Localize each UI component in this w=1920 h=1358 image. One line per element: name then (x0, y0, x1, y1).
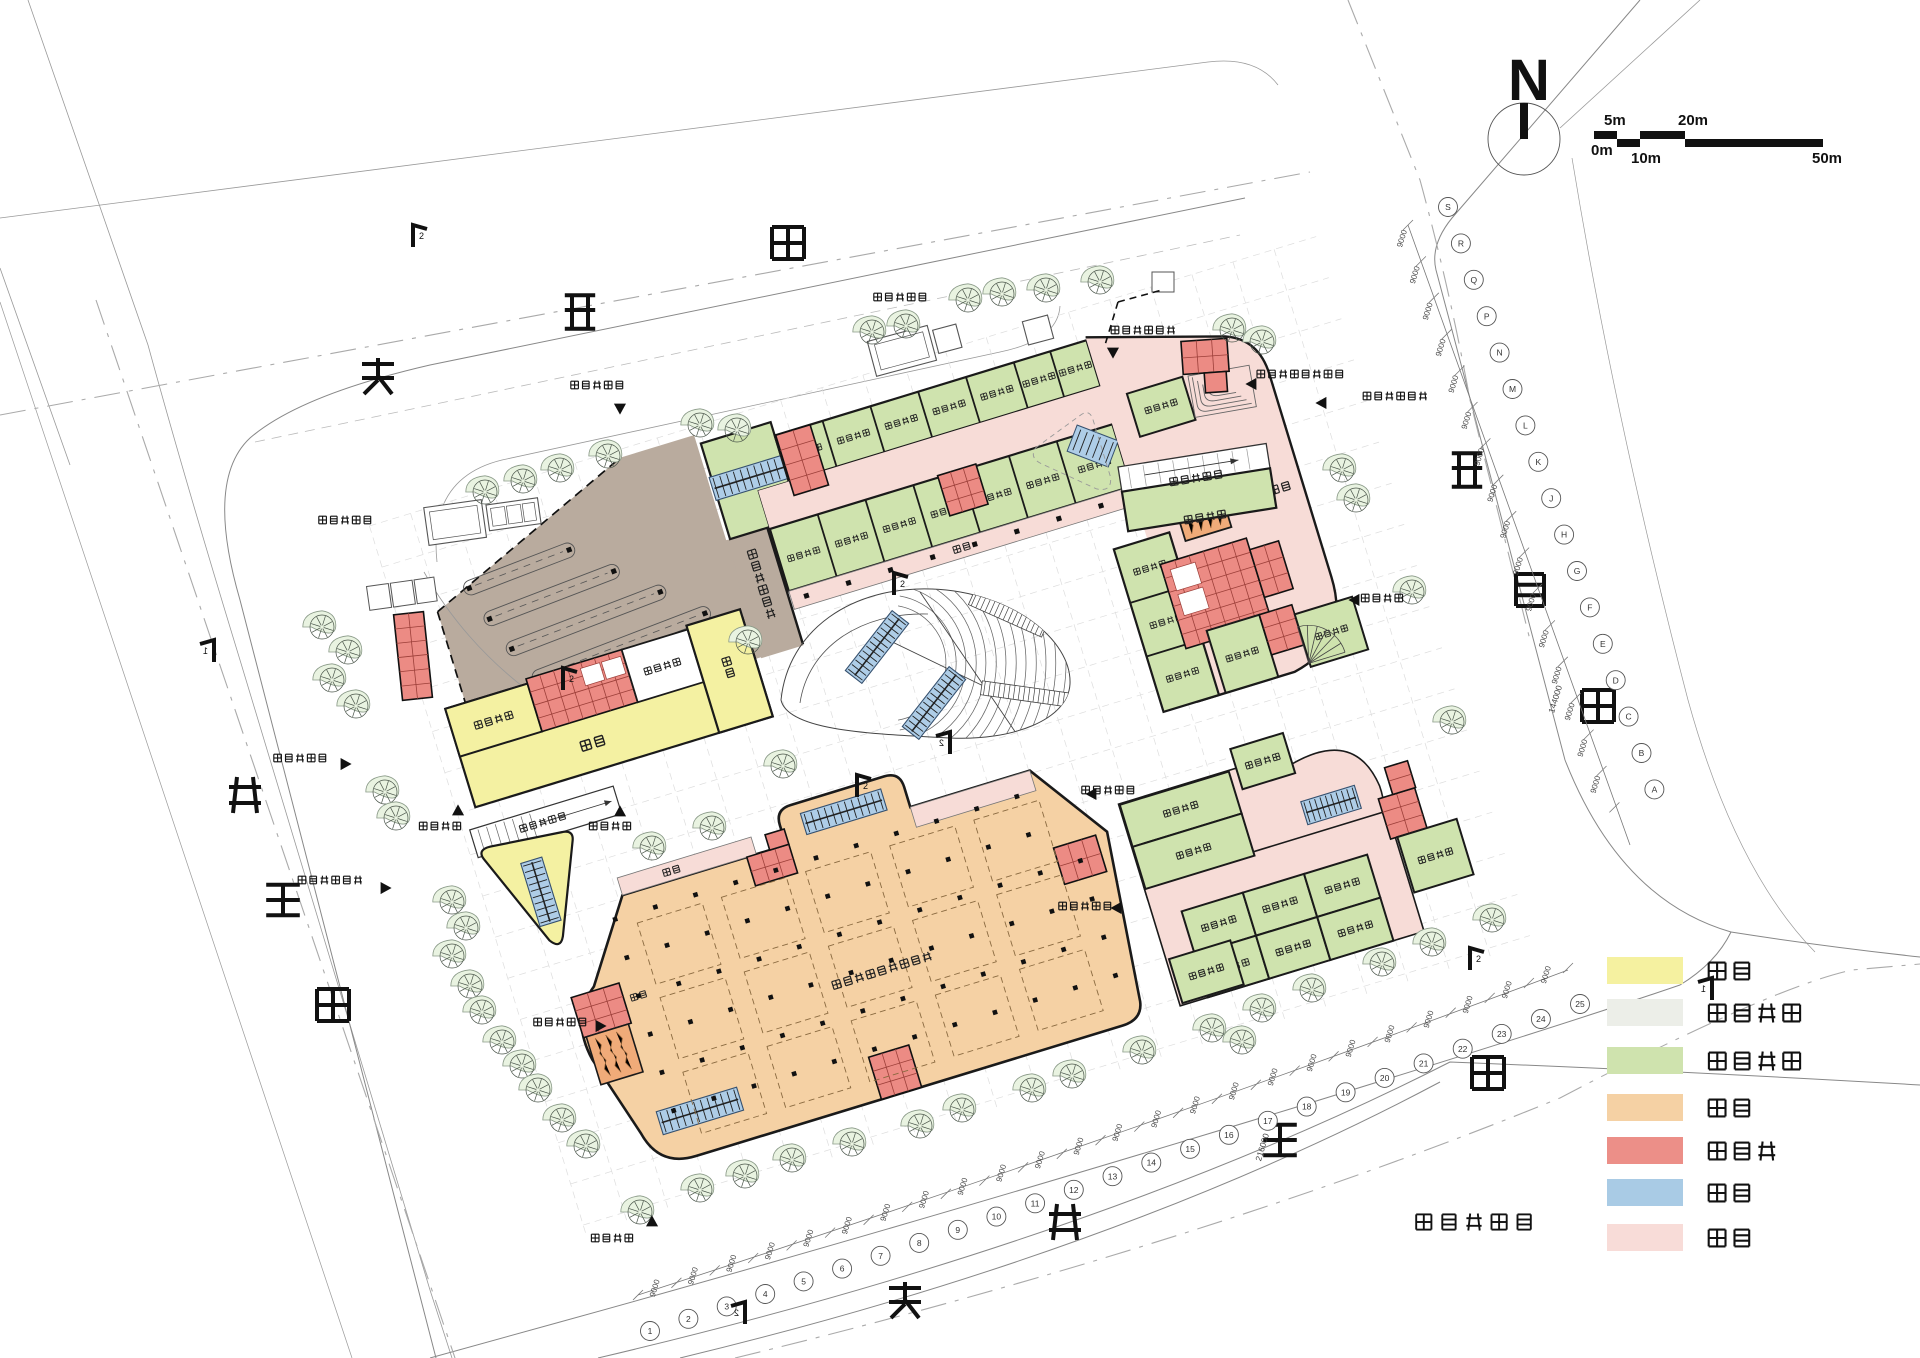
svg-text:4: 4 (763, 1289, 768, 1299)
svg-text:2: 2 (900, 579, 905, 589)
svg-text:25: 25 (1575, 999, 1585, 1009)
svg-text:D: D (1613, 675, 1619, 685)
svg-text:L: L (1523, 421, 1528, 431)
svg-text:16: 16 (1224, 1130, 1234, 1140)
svg-text:14: 14 (1147, 1158, 1157, 1168)
svg-text:9: 9 (955, 1225, 960, 1235)
svg-text:23: 23 (1497, 1029, 1507, 1039)
svg-text:1: 1 (203, 646, 208, 656)
svg-text:F: F (1587, 603, 1592, 613)
svg-text:1: 1 (1701, 984, 1706, 994)
svg-text:3: 3 (724, 1302, 729, 1312)
svg-text:18: 18 (1302, 1102, 1312, 1112)
svg-text:1: 1 (648, 1326, 653, 1336)
svg-text:2: 2 (939, 738, 944, 748)
svg-text:8: 8 (917, 1238, 922, 1248)
svg-text:E: E (1600, 639, 1606, 649)
svg-text:6: 6 (840, 1264, 845, 1274)
svg-text:M: M (1509, 384, 1516, 394)
svg-text:S: S (1445, 202, 1451, 212)
svg-text:5: 5 (801, 1276, 806, 1286)
svg-text:19: 19 (1341, 1087, 1351, 1097)
svg-text:2: 2 (569, 674, 574, 684)
svg-text:5m: 5m (1604, 112, 1626, 129)
svg-text:7: 7 (878, 1251, 883, 1261)
svg-text:2: 2 (863, 781, 868, 791)
svg-text:11: 11 (1031, 1198, 1040, 1208)
svg-text:A: A (1652, 785, 1658, 795)
svg-text:10m: 10m (1631, 150, 1661, 167)
svg-text:20m: 20m (1678, 112, 1708, 129)
svg-text:15: 15 (1185, 1144, 1195, 1154)
svg-text:17: 17 (1263, 1116, 1273, 1126)
svg-text:50m: 50m (1812, 150, 1842, 167)
svg-text:Q: Q (1470, 275, 1477, 285)
svg-text:2: 2 (686, 1314, 691, 1324)
svg-text:2: 2 (1476, 954, 1481, 964)
svg-text:J: J (1549, 493, 1553, 503)
svg-text:B: B (1639, 748, 1645, 758)
svg-text:21: 21 (1419, 1058, 1429, 1068)
svg-text:R: R (1458, 239, 1464, 249)
svg-text:24: 24 (1536, 1014, 1546, 1024)
svg-text:G: G (1574, 566, 1581, 576)
svg-text:12: 12 (1069, 1185, 1079, 1195)
svg-text:N: N (1497, 348, 1503, 358)
svg-text:22: 22 (1458, 1044, 1468, 1054)
svg-text:2: 2 (419, 231, 424, 241)
svg-text:K: K (1535, 457, 1541, 467)
svg-text:10: 10 (992, 1212, 1002, 1222)
svg-text:2: 2 (734, 1308, 739, 1318)
svg-text:C: C (1626, 712, 1632, 722)
svg-text:20: 20 (1380, 1073, 1390, 1083)
svg-text:13: 13 (1108, 1171, 1118, 1181)
svg-text:P: P (1484, 311, 1490, 321)
svg-text:H: H (1561, 530, 1567, 540)
svg-text:0m: 0m (1591, 142, 1613, 159)
